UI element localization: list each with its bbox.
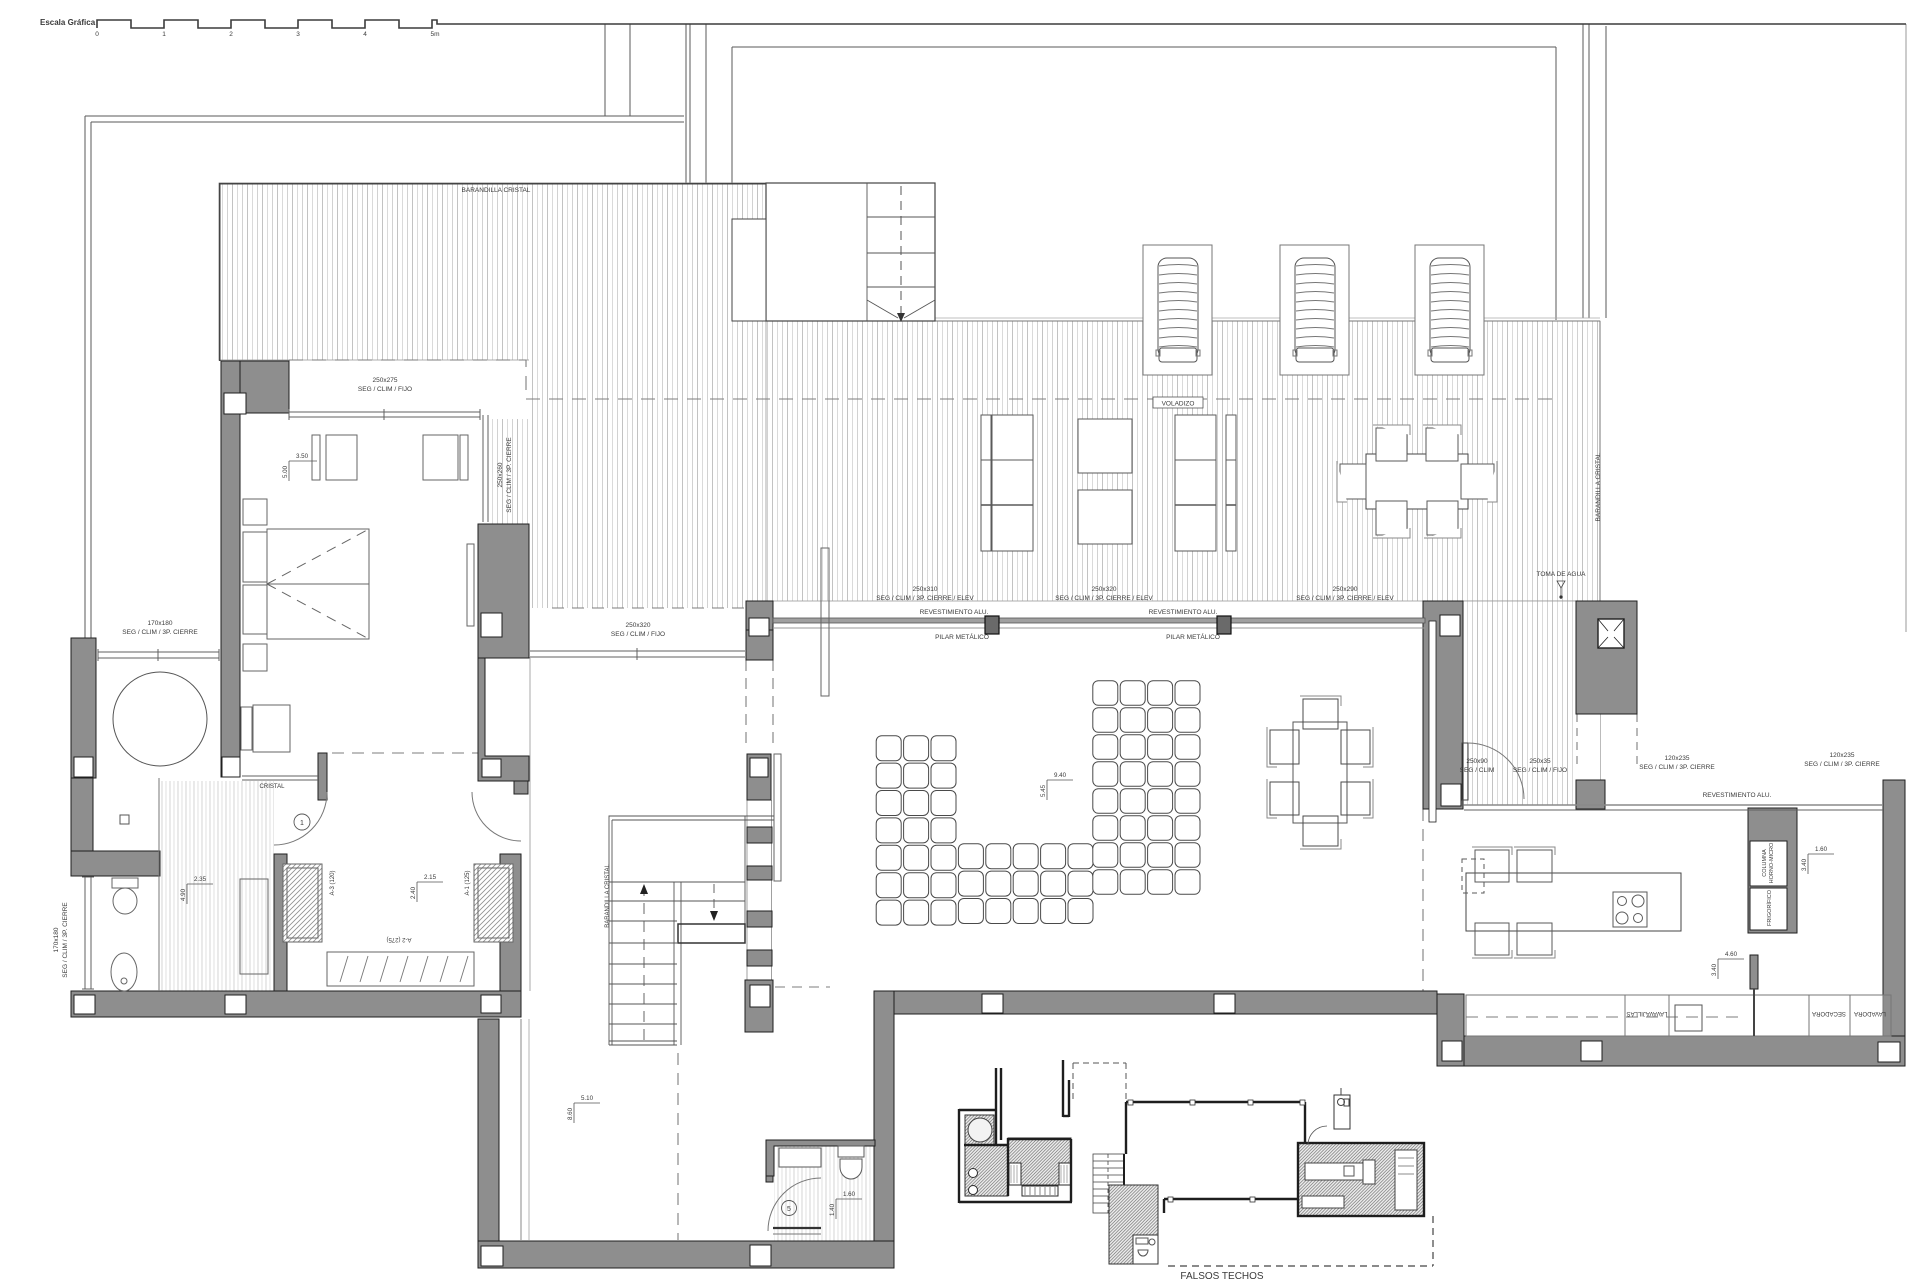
svg-text:2: 2 bbox=[229, 31, 233, 38]
svg-text:1.60: 1.60 bbox=[1815, 846, 1828, 853]
svg-text:REVESTIMIENTO ALU.: REVESTIMIENTO ALU. bbox=[1149, 609, 1218, 616]
svg-text:FRIGORÍFICO: FRIGORÍFICO bbox=[1766, 889, 1773, 926]
svg-text:250x290: 250x290 bbox=[1333, 586, 1358, 593]
svg-text:PILAR METÁLICO: PILAR METÁLICO bbox=[935, 632, 989, 641]
svg-text:5.00: 5.00 bbox=[282, 465, 289, 478]
svg-text:REVESTIMIENTO ALU.: REVESTIMIENTO ALU. bbox=[1703, 792, 1772, 799]
svg-text:250x260: 250x260 bbox=[497, 462, 504, 487]
svg-text:1.60: 1.60 bbox=[843, 1191, 856, 1198]
svg-text:SEG / CLIM / FIJO: SEG / CLIM / FIJO bbox=[611, 631, 665, 638]
svg-text:120x235: 120x235 bbox=[1830, 752, 1855, 759]
svg-text:A-3 (120): A-3 (120) bbox=[330, 870, 336, 895]
svg-text:SEG / CLIM / 3P. CIERRE: SEG / CLIM / 3P. CIERRE bbox=[62, 902, 69, 978]
svg-text:120x235: 120x235 bbox=[1665, 755, 1690, 762]
svg-text:5.45: 5.45 bbox=[1040, 784, 1047, 797]
svg-text:250x35: 250x35 bbox=[1529, 758, 1551, 765]
svg-text:LAVADORA: LAVADORA bbox=[1854, 1010, 1886, 1016]
svg-text:SEG / CLIM / 3P. CIERRE / ELEV: SEG / CLIM / 3P. CIERRE / ELEV bbox=[1296, 595, 1394, 602]
svg-text:REVESTIMIENTO ALU.: REVESTIMIENTO ALU. bbox=[920, 609, 989, 616]
svg-text:3.40: 3.40 bbox=[1801, 858, 1808, 871]
svg-text:BARANDILLA CRISTAL: BARANDILLA CRISTAL bbox=[462, 187, 531, 194]
svg-text:SEG / CLIM / 3P. CIERRE: SEG / CLIM / 3P. CIERRE bbox=[1804, 761, 1880, 768]
svg-text:170x180: 170x180 bbox=[53, 927, 60, 952]
svg-text:A-2 (275): A-2 (275) bbox=[386, 936, 411, 942]
svg-text:4.60: 4.60 bbox=[1725, 951, 1738, 958]
svg-text:250x275: 250x275 bbox=[373, 377, 398, 384]
svg-text:170x180: 170x180 bbox=[148, 620, 173, 627]
svg-text:2.40: 2.40 bbox=[410, 886, 417, 899]
svg-text:VOLADIZO: VOLADIZO bbox=[1162, 401, 1195, 408]
svg-text:250x310: 250x310 bbox=[913, 586, 938, 593]
svg-text:SEG / CLIM / 3P. CIERRE: SEG / CLIM / 3P. CIERRE bbox=[122, 629, 198, 636]
svg-text:SEG / CLIM / 3P. CIERRE / ELEV: SEG / CLIM / 3P. CIERRE / ELEV bbox=[1055, 595, 1153, 602]
svg-text:CRISTAL: CRISTAL bbox=[260, 784, 286, 790]
svg-text:250x320: 250x320 bbox=[1092, 586, 1117, 593]
svg-text:TOMA DE AGUA: TOMA DE AGUA bbox=[1536, 571, 1586, 578]
svg-text:8.60: 8.60 bbox=[567, 1107, 574, 1120]
svg-text:FALSOS TECHOS: FALSOS TECHOS bbox=[1180, 1271, 1264, 1280]
svg-text:SEG / CLIM / 3P. CIERRE: SEG / CLIM / 3P. CIERRE bbox=[506, 437, 513, 513]
svg-text:5.10: 5.10 bbox=[581, 1095, 594, 1102]
svg-text:PILAR METÁLICO: PILAR METÁLICO bbox=[1166, 632, 1220, 641]
svg-text:SEG / CLIM: SEG / CLIM bbox=[1460, 767, 1495, 774]
svg-text:COLUMNA: COLUMNA bbox=[1762, 849, 1768, 877]
svg-text:5: 5 bbox=[787, 1206, 791, 1213]
svg-text:SEG / CLIM / 3P. CIERRE: SEG / CLIM / 3P. CIERRE bbox=[1639, 764, 1715, 771]
svg-text:1.40: 1.40 bbox=[829, 1203, 836, 1216]
svg-text:250x90: 250x90 bbox=[1466, 758, 1488, 765]
svg-text:LAVAVAJILLAS: LAVAVAJILLAS bbox=[1627, 1010, 1668, 1016]
svg-text:2.15: 2.15 bbox=[424, 874, 437, 881]
svg-text:3.50: 3.50 bbox=[296, 453, 309, 460]
svg-text:BARANDILLA CRISTAL: BARANDILLA CRISTAL bbox=[605, 864, 611, 928]
svg-text:Escala Gráfica: Escala Gráfica bbox=[40, 18, 96, 27]
svg-text:4.90: 4.90 bbox=[180, 888, 187, 901]
svg-text:SEG / CLIM / FIJO: SEG / CLIM / FIJO bbox=[1513, 767, 1567, 774]
svg-text:2.35: 2.35 bbox=[194, 876, 207, 883]
svg-text:3.40: 3.40 bbox=[1711, 963, 1718, 976]
svg-text:250x320: 250x320 bbox=[626, 622, 651, 629]
svg-text:SEG / CLIM / 3P. CIERRE / ELEV: SEG / CLIM / 3P. CIERRE / ELEV bbox=[876, 595, 974, 602]
svg-text:9.40: 9.40 bbox=[1054, 772, 1067, 779]
svg-text:HORNO-MICRO: HORNO-MICRO bbox=[1769, 842, 1775, 883]
svg-text:BARANDILLA CRISTAL: BARANDILLA CRISTAL bbox=[1595, 452, 1602, 521]
svg-text:4: 4 bbox=[363, 31, 367, 38]
svg-text:SEG / CLIM / FIJO: SEG / CLIM / FIJO bbox=[358, 386, 412, 393]
svg-text:SECADORA: SECADORA bbox=[1812, 1010, 1846, 1016]
svg-text:1: 1 bbox=[162, 31, 166, 38]
svg-text:A-1 (125): A-1 (125) bbox=[465, 870, 471, 895]
svg-text:1: 1 bbox=[300, 820, 304, 827]
svg-text:3: 3 bbox=[296, 31, 300, 38]
svg-text:5m: 5m bbox=[430, 31, 439, 38]
svg-text:0: 0 bbox=[95, 31, 99, 38]
